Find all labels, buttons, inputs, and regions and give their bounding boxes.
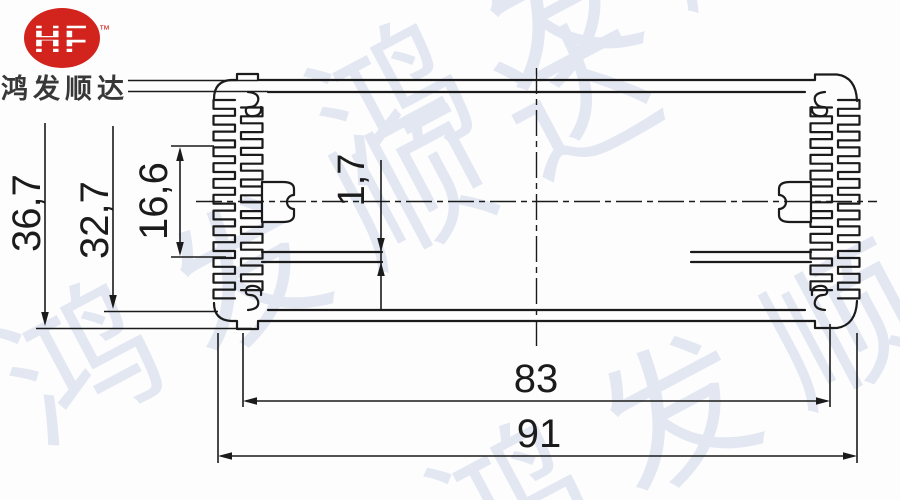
technical-drawing-page: 鸿发顺达 鸿发顺达 鸿发顺达 HF ™ 鸿发顺达 <box>0 0 900 500</box>
corner-hook-top-left <box>246 92 261 116</box>
dim-label-card-section-height: 16,6 <box>132 162 176 240</box>
extrusion-profile-drawing: 鸿发顺达 鸿发顺达 鸿发顺达 HF ™ 鸿发顺达 <box>0 0 900 500</box>
arrow-left <box>218 452 232 460</box>
logo-brand-text: HF <box>34 19 91 61</box>
arrow-left <box>243 397 257 405</box>
logo-company-name: 鸿发顺达 <box>1 73 129 104</box>
corner-hook-top-right <box>812 92 827 116</box>
dim-label-overall-width: 91 <box>517 412 562 456</box>
logo-trademark: ™ <box>99 24 110 36</box>
dim-label-inner-height: 32,7 <box>73 181 117 259</box>
dim-label-body-width: 83 <box>514 357 559 401</box>
arrow-up <box>176 147 184 161</box>
dim-label-overall-height: 36,7 <box>5 174 49 252</box>
arrow-right <box>843 452 857 460</box>
dim-label-slot-gap: 1,7 <box>331 154 373 207</box>
watermark-layer: 鸿发顺达 鸿发顺达 鸿发顺达 <box>0 0 900 500</box>
logo: HF ™ 鸿发顺达 <box>1 8 129 104</box>
